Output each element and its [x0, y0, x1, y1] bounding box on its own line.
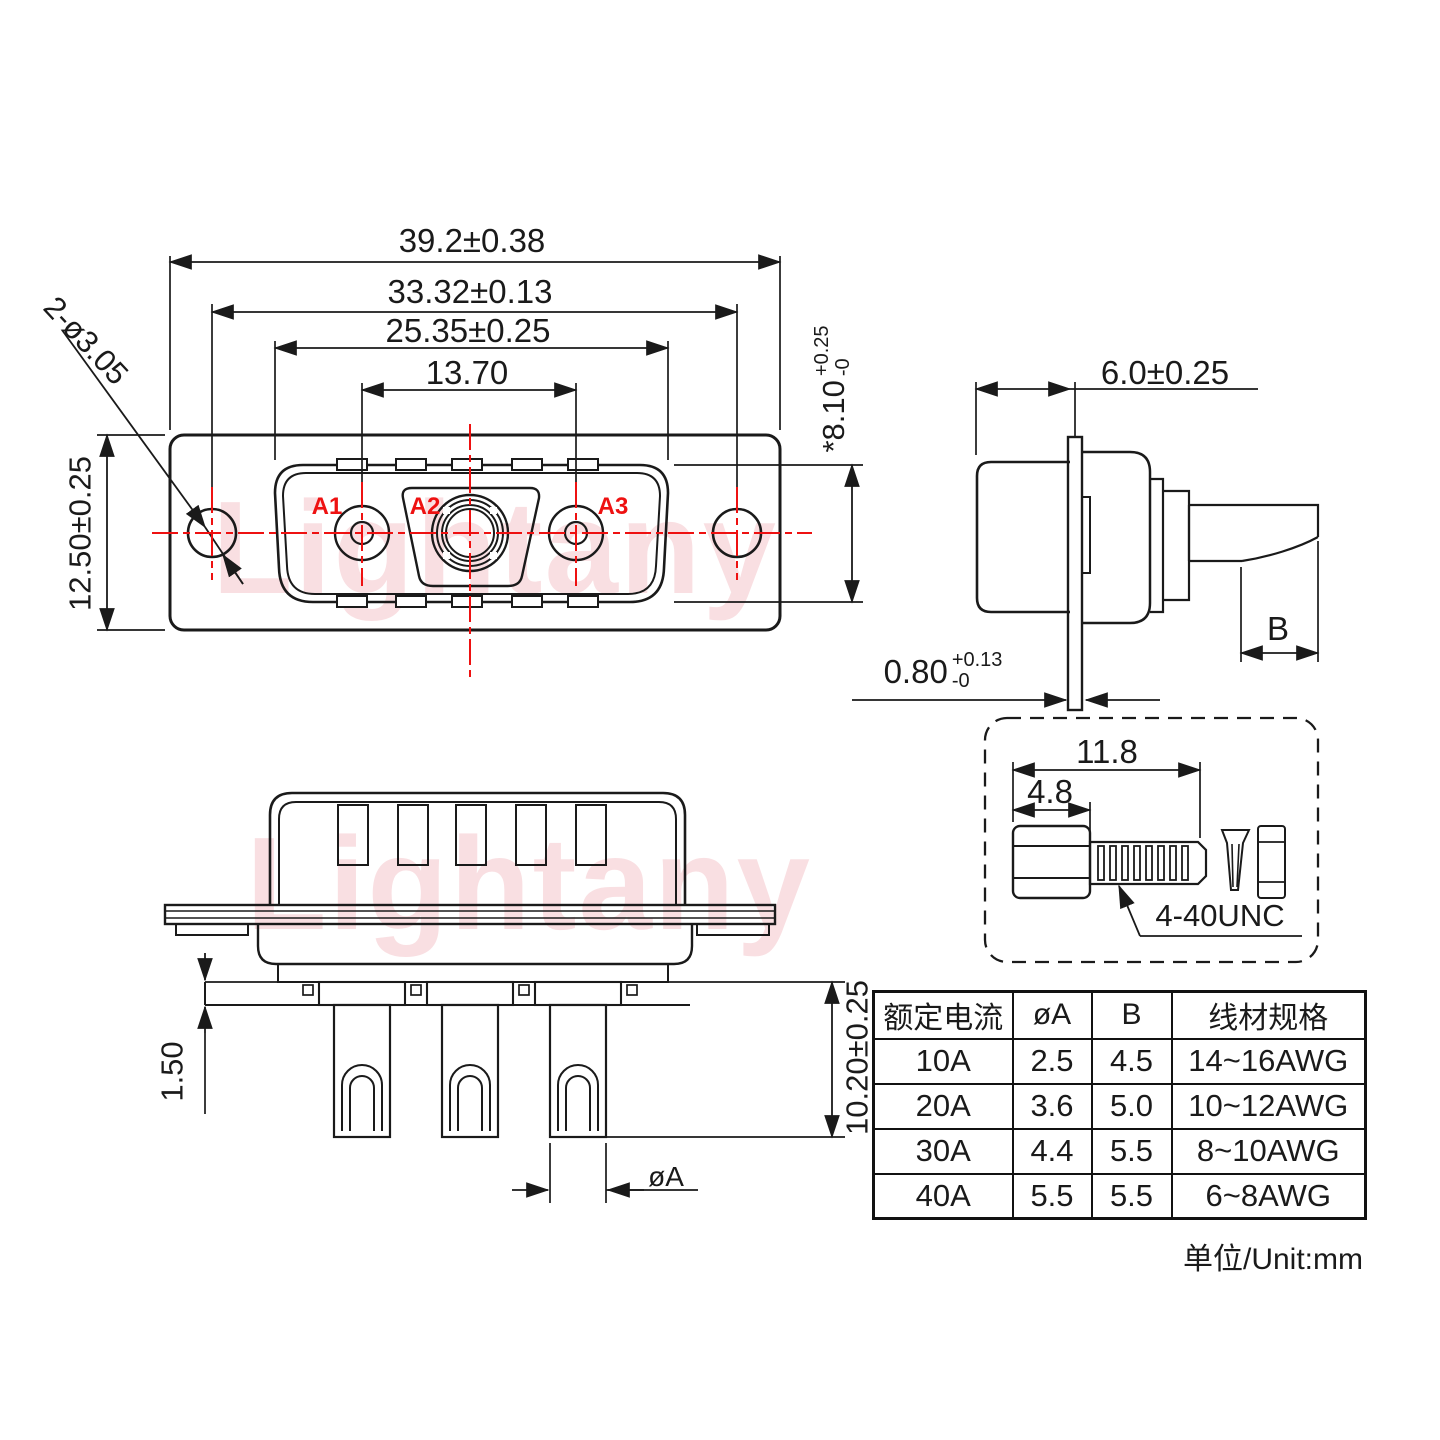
dim-body-depth: 6.0±0.25: [1080, 356, 1250, 389]
cell-phi-a: 3.6: [1013, 1084, 1092, 1129]
dim-standoff: 1.50: [157, 1022, 188, 1122]
label-tab-width-b: B: [1258, 612, 1298, 645]
tol-plus: +0.13: [952, 650, 1003, 671]
cell-b: 5.5: [1092, 1129, 1172, 1174]
cell-wire: 14~16AWG: [1172, 1039, 1366, 1084]
tol-plus: +0.25: [812, 326, 833, 377]
cell-phi-a: 2.5: [1013, 1039, 1092, 1084]
contact-label-a3: A3: [588, 495, 638, 519]
cell-current: 20A: [874, 1084, 1013, 1129]
cad-linework: [0, 0, 1440, 1440]
dim-screw-length: 11.8: [1062, 735, 1152, 768]
cell-current: 30A: [874, 1129, 1013, 1174]
cell-b: 5.5: [1092, 1174, 1172, 1219]
dim-overall-width: 39.2±0.38: [387, 224, 557, 257]
cell-b: 5.0: [1092, 1084, 1172, 1129]
cell-current: 10A: [874, 1039, 1013, 1084]
cell-wire: 10~12AWG: [1172, 1084, 1366, 1129]
dim-flange-height: 12.50±0.25: [65, 444, 96, 624]
spec-table: 额定电流 øA B 线材规格 10A 2.5 4.5 14~16AWG 20A …: [872, 990, 1367, 1220]
spec-table-row: 10A 2.5 4.5 14~16AWG: [874, 1039, 1366, 1084]
dim-shell-height-tolerance: +0.25 -0: [812, 326, 854, 377]
dim-flange-thickness-tolerance: +0.13 -0: [952, 650, 1003, 692]
dim-pin-length: 10.20±0.25: [842, 968, 873, 1148]
dim-flange-thickness: 0.80 +0.13 -0: [858, 650, 1028, 692]
cell-b: 4.5: [1092, 1039, 1172, 1084]
cell-current: 40A: [874, 1174, 1013, 1219]
contact-label-a2: A2: [400, 495, 450, 519]
dim-shell-height: *8.10 +0.25 -0: [812, 304, 854, 474]
header-rated-current: 额定电流: [874, 992, 1013, 1039]
tol-minus: -0: [833, 326, 854, 377]
dim-shell-height-value: *8.10: [818, 380, 849, 452]
spec-table-header-row: 额定电流 øA B 线材规格: [874, 992, 1366, 1039]
header-wire-spec: 线材规格: [1172, 992, 1366, 1039]
dim-contact-span: 13.70: [417, 356, 517, 389]
cell-wire: 6~8AWG: [1172, 1174, 1366, 1219]
technical-drawing-page: Lightany Lightany: [0, 0, 1440, 1440]
dim-hole-spacing: 33.32±0.13: [380, 275, 560, 308]
dim-shell-width: 25.35±0.25: [378, 314, 558, 347]
spec-table-row: 40A 5.5 5.5 6~8AWG: [874, 1174, 1366, 1219]
header-phi-a: øA: [1013, 992, 1092, 1039]
contact-label-a1: A1: [302, 495, 352, 519]
cell-phi-a: 5.5: [1013, 1174, 1092, 1219]
dim-flange-thickness-value: 0.80: [884, 655, 948, 688]
cell-wire: 8~10AWG: [1172, 1129, 1366, 1174]
label-pin-diameter: øA: [636, 1163, 696, 1191]
bottom-view-drawing: [165, 793, 845, 1203]
unit-note: 单位/Unit:mm: [1183, 1234, 1363, 1278]
tol-minus: -0: [952, 671, 1003, 692]
spec-table-row: 20A 3.6 5.0 10~12AWG: [874, 1084, 1366, 1129]
header-b: B: [1092, 992, 1172, 1039]
dim-screw-head: 4.8: [1010, 775, 1090, 808]
spec-table-row: 30A 4.4 5.5 8~10AWG: [874, 1129, 1366, 1174]
cell-phi-a: 4.4: [1013, 1129, 1092, 1174]
label-thread-spec: 4-40UNC: [1140, 900, 1300, 931]
